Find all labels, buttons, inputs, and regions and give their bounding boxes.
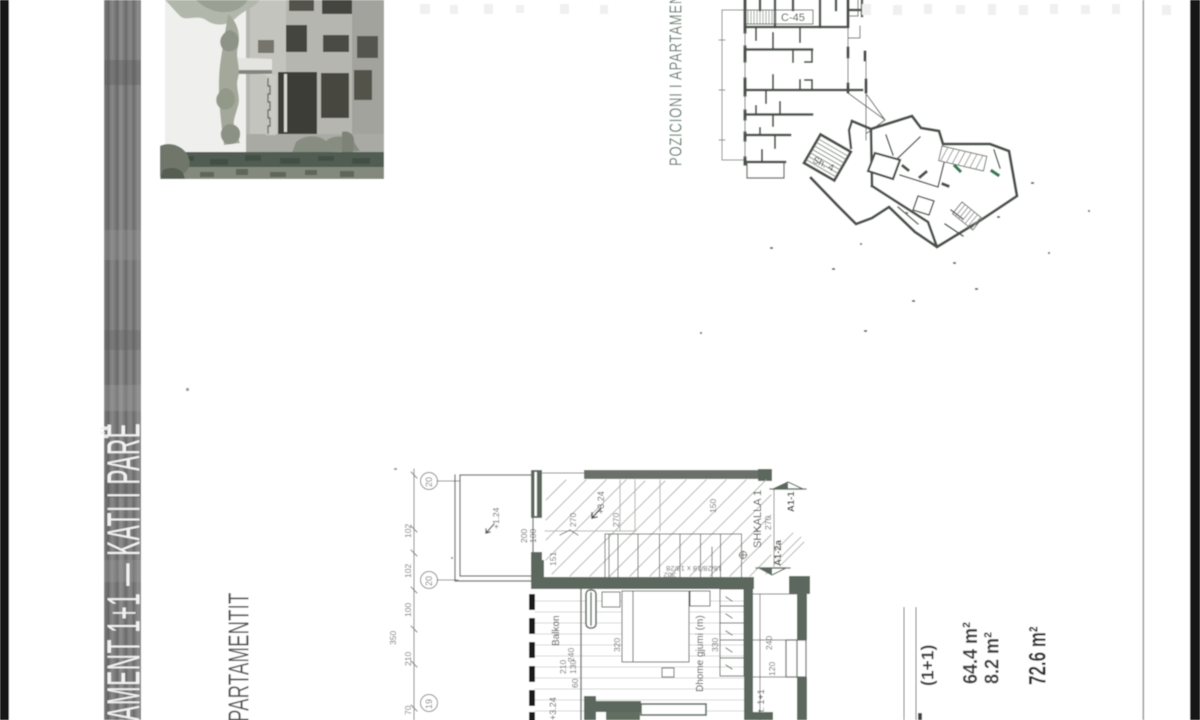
svg-text:SHKALLA 1: SHKALLA 1 [752, 490, 764, 548]
svg-text:102: 102 [403, 564, 413, 578]
svg-text:100: 100 [403, 603, 413, 617]
svg-text:Dhome gjumi (m): Dhome gjumi (m) [695, 615, 706, 692]
svg-text:130: 130 [568, 660, 578, 674]
svg-text:151: 151 [548, 552, 558, 566]
svg-text:+1.24: +1.24 [491, 507, 501, 529]
svg-text:240: 240 [764, 636, 774, 650]
svg-text:70: 70 [403, 705, 413, 715]
svg-text:72.6 m²: 72.6 m² [1025, 626, 1051, 685]
svg-text:150: 150 [708, 499, 718, 513]
svg-text:60: 60 [570, 678, 580, 688]
svg-text:A1-1: A1-1 [786, 491, 797, 512]
svg-text:64.4 m²: 64.4 m² [959, 622, 982, 684]
svg-text:APARTAMENT 1+1 — KATI I PARË: APARTAMENT 1+1 — KATI I PARË [98, 423, 150, 720]
svg-text:+3.24: +3.24 [596, 491, 606, 514]
svg-text:20: 20 [424, 576, 434, 586]
svg-text:330: 330 [710, 638, 720, 652]
svg-text:210: 210 [558, 660, 568, 674]
svg-text:350: 350 [388, 631, 398, 645]
svg-text:210: 210 [403, 652, 413, 666]
svg-text:C-45: C-45 [781, 12, 805, 24]
svg-text:270: 270 [568, 513, 578, 527]
svg-text:PAMJA E APARTAMENTIT: PAMJA E APARTAMENTIT [224, 593, 256, 720]
svg-text:(1+1): (1+1) [918, 645, 938, 686]
svg-text:Balkon: Balkon [551, 615, 562, 646]
svg-text:POZICIONI I APARTAMENTEVE: POZICIONI I APARTAMENTEVE [667, 0, 686, 166]
svg-text:102: 102 [403, 524, 413, 538]
svg-text:20: 20 [424, 477, 434, 487]
svg-text:120: 120 [767, 662, 777, 676]
svg-text:270: 270 [763, 516, 773, 530]
svg-text:19: 19 [424, 699, 434, 709]
svg-text:+3.24: +3.24 [548, 697, 558, 720]
svg-text:320: 320 [612, 638, 622, 652]
svg-text:270: 270 [611, 513, 621, 527]
svg-text:8.2 m²: 8.2 m² [980, 632, 1003, 684]
svg-text:100: 100 [528, 529, 538, 543]
